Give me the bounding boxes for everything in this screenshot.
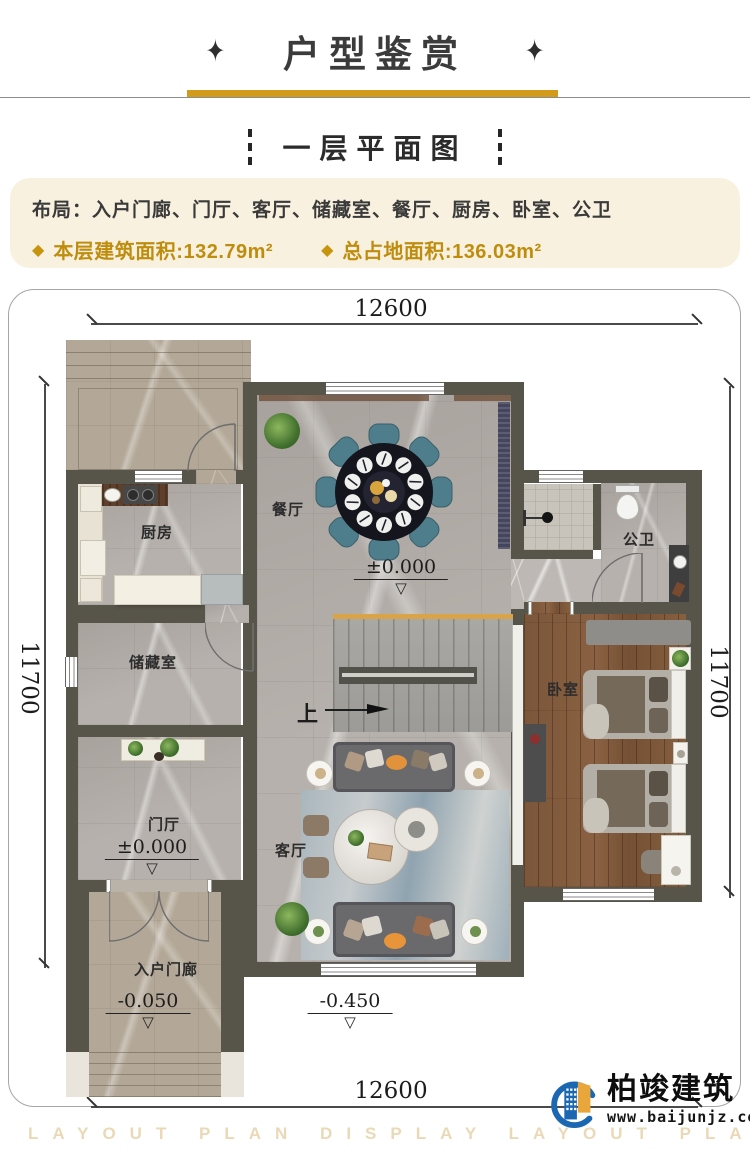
dim-top: 12600 — [341, 296, 441, 322]
dining-runner — [259, 395, 429, 401]
toilet-bowl — [616, 494, 639, 520]
plant-pot — [470, 926, 481, 937]
stair-up-label: 上 — [297, 698, 327, 728]
kitchen-appliance — [80, 578, 102, 602]
company-logo: 柏竣建筑 www.baijunjz.com — [545, 1074, 750, 1132]
porch-wall — [221, 892, 244, 1052]
room-label-kitchen: 厨房 — [141, 522, 173, 543]
door-opening — [205, 605, 249, 623]
sofa — [333, 742, 455, 792]
plant-stand — [669, 647, 691, 670]
dashed-bar-icon — [248, 129, 252, 165]
kitchen-fridge — [80, 540, 106, 576]
bed-throw — [583, 798, 609, 833]
page-header: ✦ 户型鉴赏 ✦ — [0, 0, 750, 78]
room-label-living: 客厅 — [275, 840, 307, 861]
kitchen-stove — [123, 485, 157, 504]
porch-step-side — [221, 1052, 244, 1097]
bedroom-desk — [524, 724, 546, 802]
stove-burner — [142, 489, 154, 501]
room-label-storage: 储藏室 — [129, 652, 177, 673]
dim-line-left — [44, 384, 46, 968]
divider-line — [0, 97, 750, 98]
room-label-bath: 公卫 — [623, 529, 655, 550]
kitchen-cabinets — [78, 484, 103, 602]
kitchen-cart — [201, 574, 243, 605]
foyer-console — [121, 739, 205, 761]
porch-step-side — [66, 1052, 89, 1097]
door-arc — [592, 553, 643, 604]
plant — [264, 413, 300, 449]
door-opening — [531, 602, 571, 614]
decor-bowl — [154, 752, 164, 761]
headboard — [671, 670, 686, 739]
side-table — [464, 760, 491, 787]
bed-pillow — [649, 677, 668, 702]
shower-valve — [523, 510, 526, 526]
sparkle-icon: ✦ — [206, 33, 225, 69]
orange-pillow — [384, 933, 406, 949]
pillow — [364, 748, 384, 768]
dining-cabinet — [498, 402, 510, 549]
kitchen-appliance — [80, 486, 102, 512]
kitchen-island — [114, 575, 201, 605]
window — [65, 657, 78, 687]
logo-texts: 柏竣建筑 www.baijunjz.com — [607, 1074, 750, 1126]
ottoman — [303, 815, 329, 836]
nightstand — [673, 742, 688, 764]
pillow — [428, 752, 448, 772]
plant — [275, 902, 309, 936]
table-plant — [348, 830, 364, 846]
bed-throw — [583, 704, 609, 739]
terrace-step — [66, 352, 251, 353]
room-label-bedroom: 卧室 — [547, 679, 579, 700]
elevation-value: ±0.000 — [354, 556, 448, 580]
table-decor — [408, 821, 425, 838]
elevation-triangle-icon: ▽ — [106, 1015, 191, 1030]
room-label-porch: 入户门廊 — [134, 959, 198, 980]
dashed-bar-icon — [498, 129, 502, 165]
bed-pillow — [649, 802, 668, 827]
stair-up-arrowhead — [367, 704, 389, 714]
room-label-foyer: 门厅 — [148, 814, 180, 835]
window — [135, 470, 182, 483]
pillow — [429, 919, 450, 940]
elevation-value: ±0.000 — [105, 836, 199, 860]
bedroom-dresser — [661, 835, 691, 885]
door-jamb — [528, 601, 532, 615]
plant — [672, 650, 689, 667]
side-coffee-table — [394, 807, 439, 852]
dim-line-top — [91, 323, 698, 325]
building-logo-icon — [545, 1074, 603, 1132]
orange-pillow — [386, 755, 407, 770]
table-tray — [367, 842, 393, 861]
lamp — [315, 768, 326, 779]
porch-wall — [66, 892, 89, 1052]
bedroom-rug — [586, 620, 691, 645]
door-jamb — [570, 601, 574, 615]
elevation-triangle-icon: ▽ — [308, 1015, 393, 1030]
window — [563, 888, 654, 901]
room-label-dining: 餐厅 — [272, 499, 304, 520]
wall — [243, 382, 257, 962]
terrace-step — [66, 378, 251, 379]
door-arc — [187, 423, 237, 473]
terrace-step — [66, 365, 251, 366]
elevation-dining: ±0.000 ▽ — [354, 556, 448, 596]
bath-sink — [673, 555, 687, 569]
sofa — [333, 902, 455, 957]
double-door-arc — [109, 891, 209, 943]
sliding-door-panel — [512, 625, 523, 865]
wall — [593, 484, 601, 550]
bed — [583, 670, 686, 739]
logo-company-name: 柏竣建筑 — [607, 1074, 750, 1106]
layout-line: 布局：入户门廊、门厅、客厅、储藏室、餐厅、厨房、卧室、公卫 — [32, 195, 720, 222]
stair-up-arrow-line — [325, 709, 371, 711]
staircase — [333, 619, 513, 732]
stair-gold-strip — [333, 614, 513, 619]
desk-flower — [530, 734, 540, 744]
kitchen-sink — [104, 488, 121, 502]
pillow — [361, 915, 383, 937]
side-table — [306, 760, 333, 787]
floor-area-value: 本层建筑面积:132.79m² — [53, 235, 273, 264]
bath-vanity — [669, 545, 689, 602]
title-underline — [0, 90, 750, 100]
shower-head — [542, 512, 553, 523]
dim-right: 11700 — [705, 627, 731, 737]
stair-rail-inner — [342, 673, 474, 677]
nightstand-decor — [677, 750, 685, 758]
sparkle-icon: ✦ — [525, 33, 544, 69]
area-line: ◆ 本层建筑面积:132.79m² ◆ 总占地面积:136.03m² — [32, 235, 720, 264]
layout-info-box: 布局：入户门廊、门厅、客厅、储藏室、餐厅、厨房、卧室、公卫 ◆ 本层建筑面积:1… — [10, 178, 740, 268]
porch-steps — [89, 1052, 221, 1097]
door-opening — [511, 559, 524, 609]
diamond-icon: ◆ — [321, 240, 333, 260]
stove-burner — [127, 489, 139, 501]
bed — [583, 764, 686, 833]
plant-pot — [313, 926, 324, 937]
dining-table-set — [314, 422, 454, 562]
logo-website-url: www.baijunjz.com — [607, 1108, 750, 1126]
pillow — [410, 749, 431, 770]
window — [326, 382, 444, 395]
layout-value: 入户门廊、门厅、客厅、储藏室、餐厅、厨房、卧室、公卫 — [92, 200, 612, 221]
bath-accessory — [672, 582, 686, 598]
bed-pillow — [649, 771, 668, 796]
bed-pillow — [649, 708, 668, 733]
floor-label: 一层平面图 — [282, 127, 467, 167]
gold-accent-bar — [187, 90, 558, 97]
headboard — [671, 764, 686, 833]
plant — [128, 741, 143, 756]
floorplan-card: 12600 12600 11700 11700 — [8, 289, 741, 1107]
dining-runner — [454, 395, 511, 401]
page-title: 户型鉴赏 — [283, 24, 467, 78]
pillow — [344, 751, 365, 772]
plan-subtitle: 一层平面图 — [0, 127, 750, 167]
window — [321, 963, 476, 976]
door-arc — [205, 623, 254, 672]
side-table — [461, 918, 488, 945]
elevation-foyer: ±0.000 ▽ — [105, 836, 199, 876]
window — [539, 470, 583, 483]
wall — [66, 725, 257, 737]
toilet-tank — [615, 485, 640, 493]
stair-rail — [339, 667, 477, 684]
elevation-triangle-icon: ▽ — [354, 581, 448, 596]
elevation-porch: -0.050 ▽ — [106, 990, 191, 1030]
elevation-outside: -0.450 ▽ — [308, 990, 393, 1030]
dresser-decor — [671, 866, 681, 876]
diamond-icon: ◆ — [32, 240, 44, 260]
elevation-value: -0.450 — [308, 990, 393, 1014]
wall — [511, 550, 593, 559]
elevation-value: -0.050 — [106, 990, 191, 1014]
dim-left: 11700 — [16, 623, 42, 733]
elevation-triangle-icon: ▽ — [105, 861, 199, 876]
lamp — [473, 768, 484, 779]
dim-bottom: 12600 — [341, 1078, 441, 1104]
layout-label: 布局： — [32, 200, 92, 221]
total-area-value: 总占地面积:136.03m² — [342, 235, 541, 264]
